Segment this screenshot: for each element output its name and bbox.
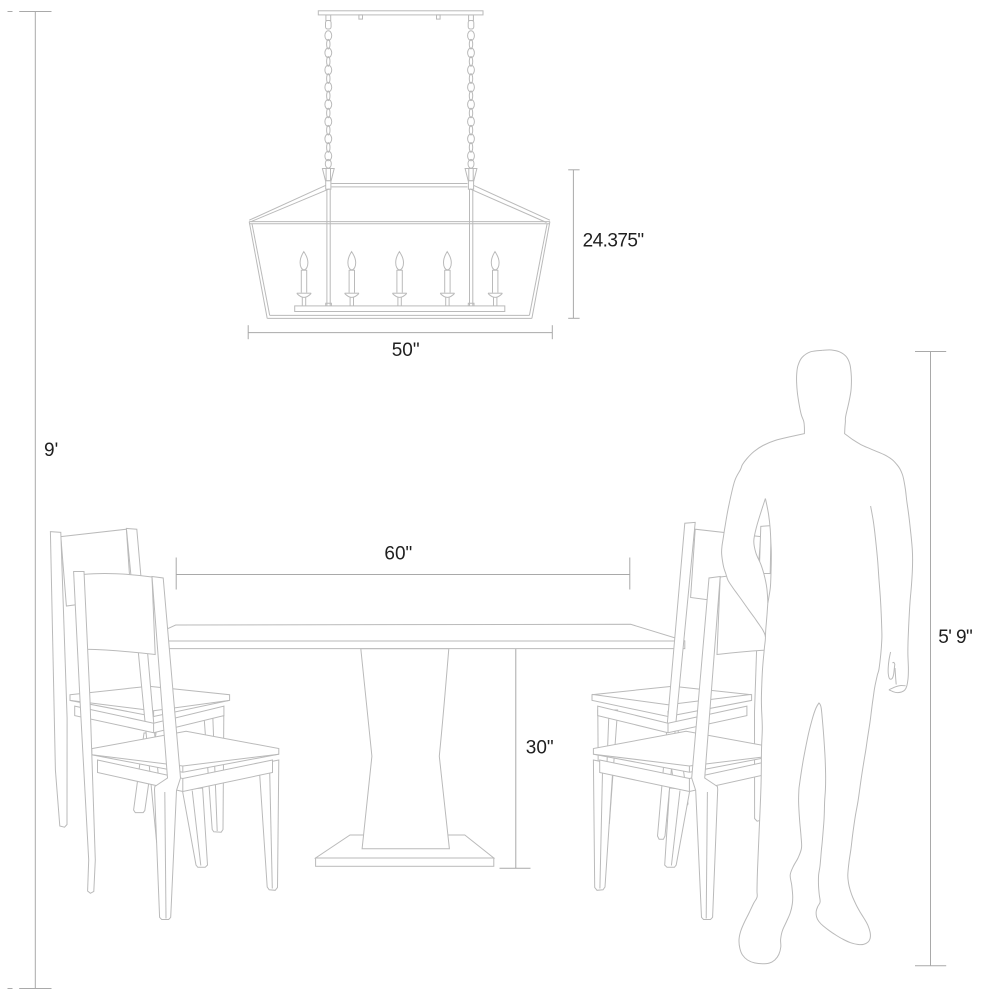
svg-text:9': 9' (44, 440, 58, 461)
svg-text:5' 9": 5' 9" (938, 627, 972, 648)
svg-text:60": 60" (384, 544, 412, 565)
svg-text:50": 50" (392, 340, 420, 361)
svg-text:24.375": 24.375" (583, 231, 644, 252)
svg-text:30": 30" (526, 737, 554, 758)
